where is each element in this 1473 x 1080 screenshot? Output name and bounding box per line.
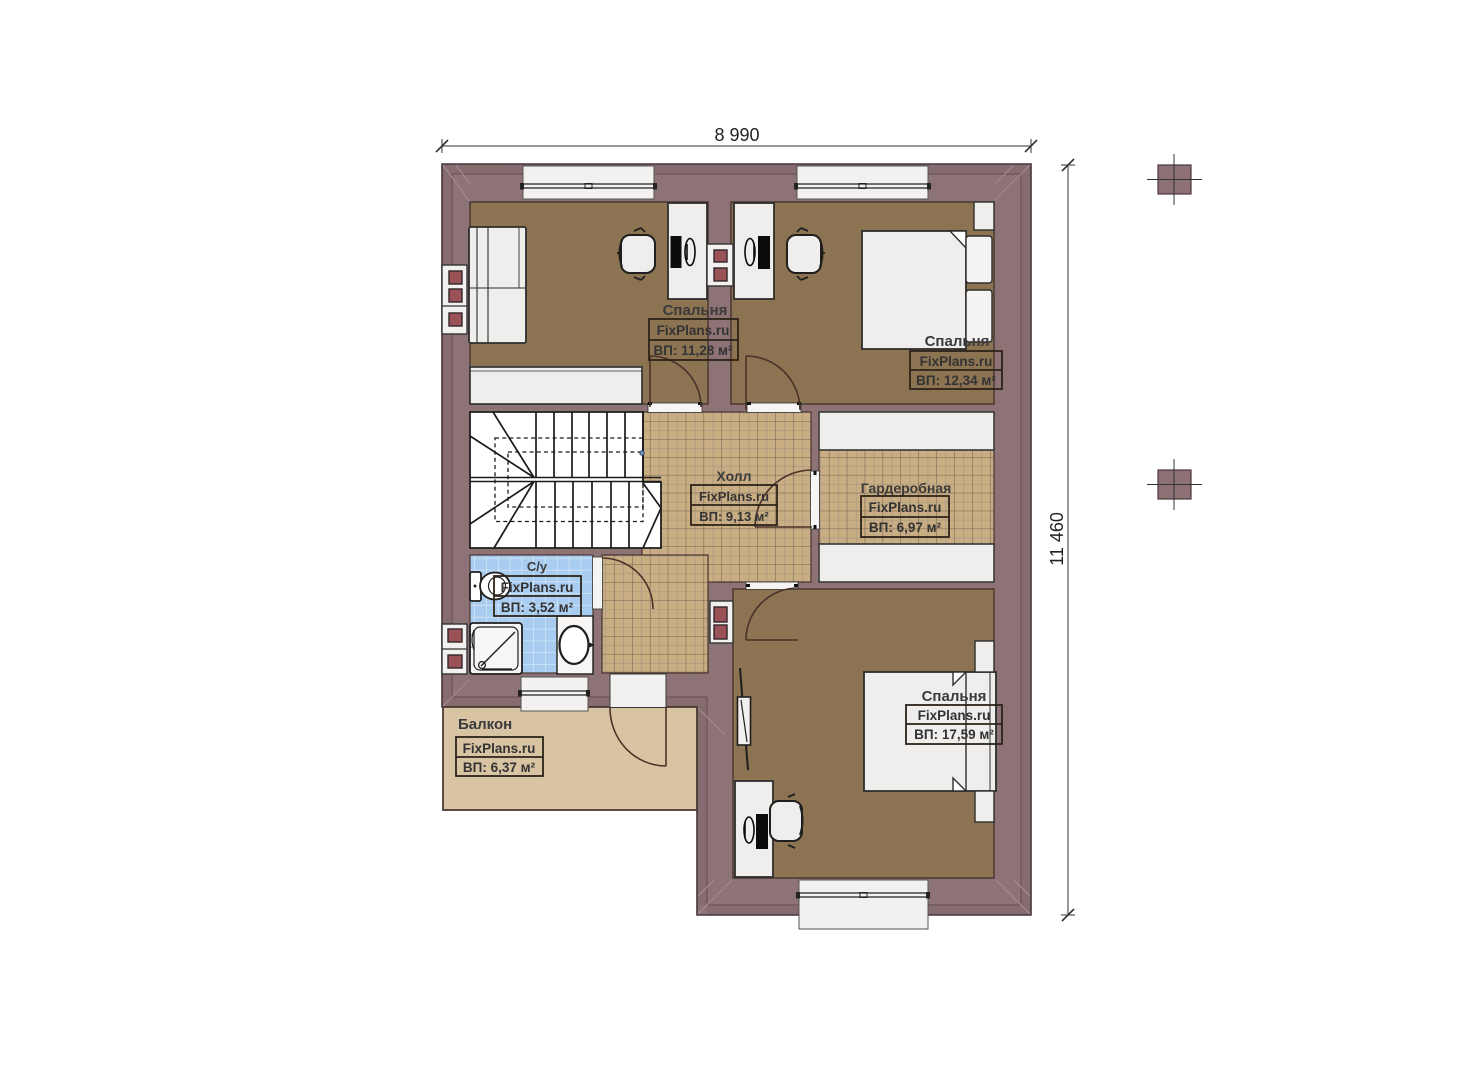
svg-text:8 990: 8 990 (714, 125, 759, 145)
svg-text:ВП: 6,97 м²: ВП: 6,97 м² (869, 520, 942, 535)
svg-text:FixPlans.ru: FixPlans.ru (920, 354, 993, 369)
svg-text:Холл: Холл (716, 468, 751, 484)
svg-text:ВП: 11,28 м²: ВП: 11,28 м² (654, 343, 733, 358)
svg-text:FixPlans.ru: FixPlans.ru (657, 323, 730, 338)
svg-text:FixPlans.ru: FixPlans.ru (918, 708, 991, 723)
svg-text:FixPlans.ru: FixPlans.ru (869, 500, 942, 515)
svg-text:11 460: 11 460 (1047, 512, 1067, 566)
svg-text:Спальня: Спальня (663, 302, 728, 319)
svg-text:FixPlans.ru: FixPlans.ru (501, 580, 574, 595)
svg-text:Спальня: Спальня (922, 688, 987, 705)
svg-text:С/у: С/у (527, 559, 548, 574)
svg-text:ВП: 3,52 м²: ВП: 3,52 м² (501, 600, 574, 615)
svg-text:FixPlans.ru: FixPlans.ru (463, 741, 536, 756)
svg-text:ВП: 12,34 м²: ВП: 12,34 м² (916, 373, 996, 388)
svg-text:ВП: 17,59 м²: ВП: 17,59 м² (914, 727, 994, 742)
svg-text:ВП: 9,13 м²: ВП: 9,13 м² (699, 509, 769, 524)
svg-text:FixPlans.ru: FixPlans.ru (699, 489, 769, 504)
svg-text:Спальня: Спальня (925, 333, 990, 350)
svg-text:Балкон: Балкон (458, 716, 512, 733)
svg-text:ВП: 6,37 м²: ВП: 6,37 м² (463, 760, 536, 775)
svg-text:Гардеробная: Гардеробная (861, 480, 952, 496)
